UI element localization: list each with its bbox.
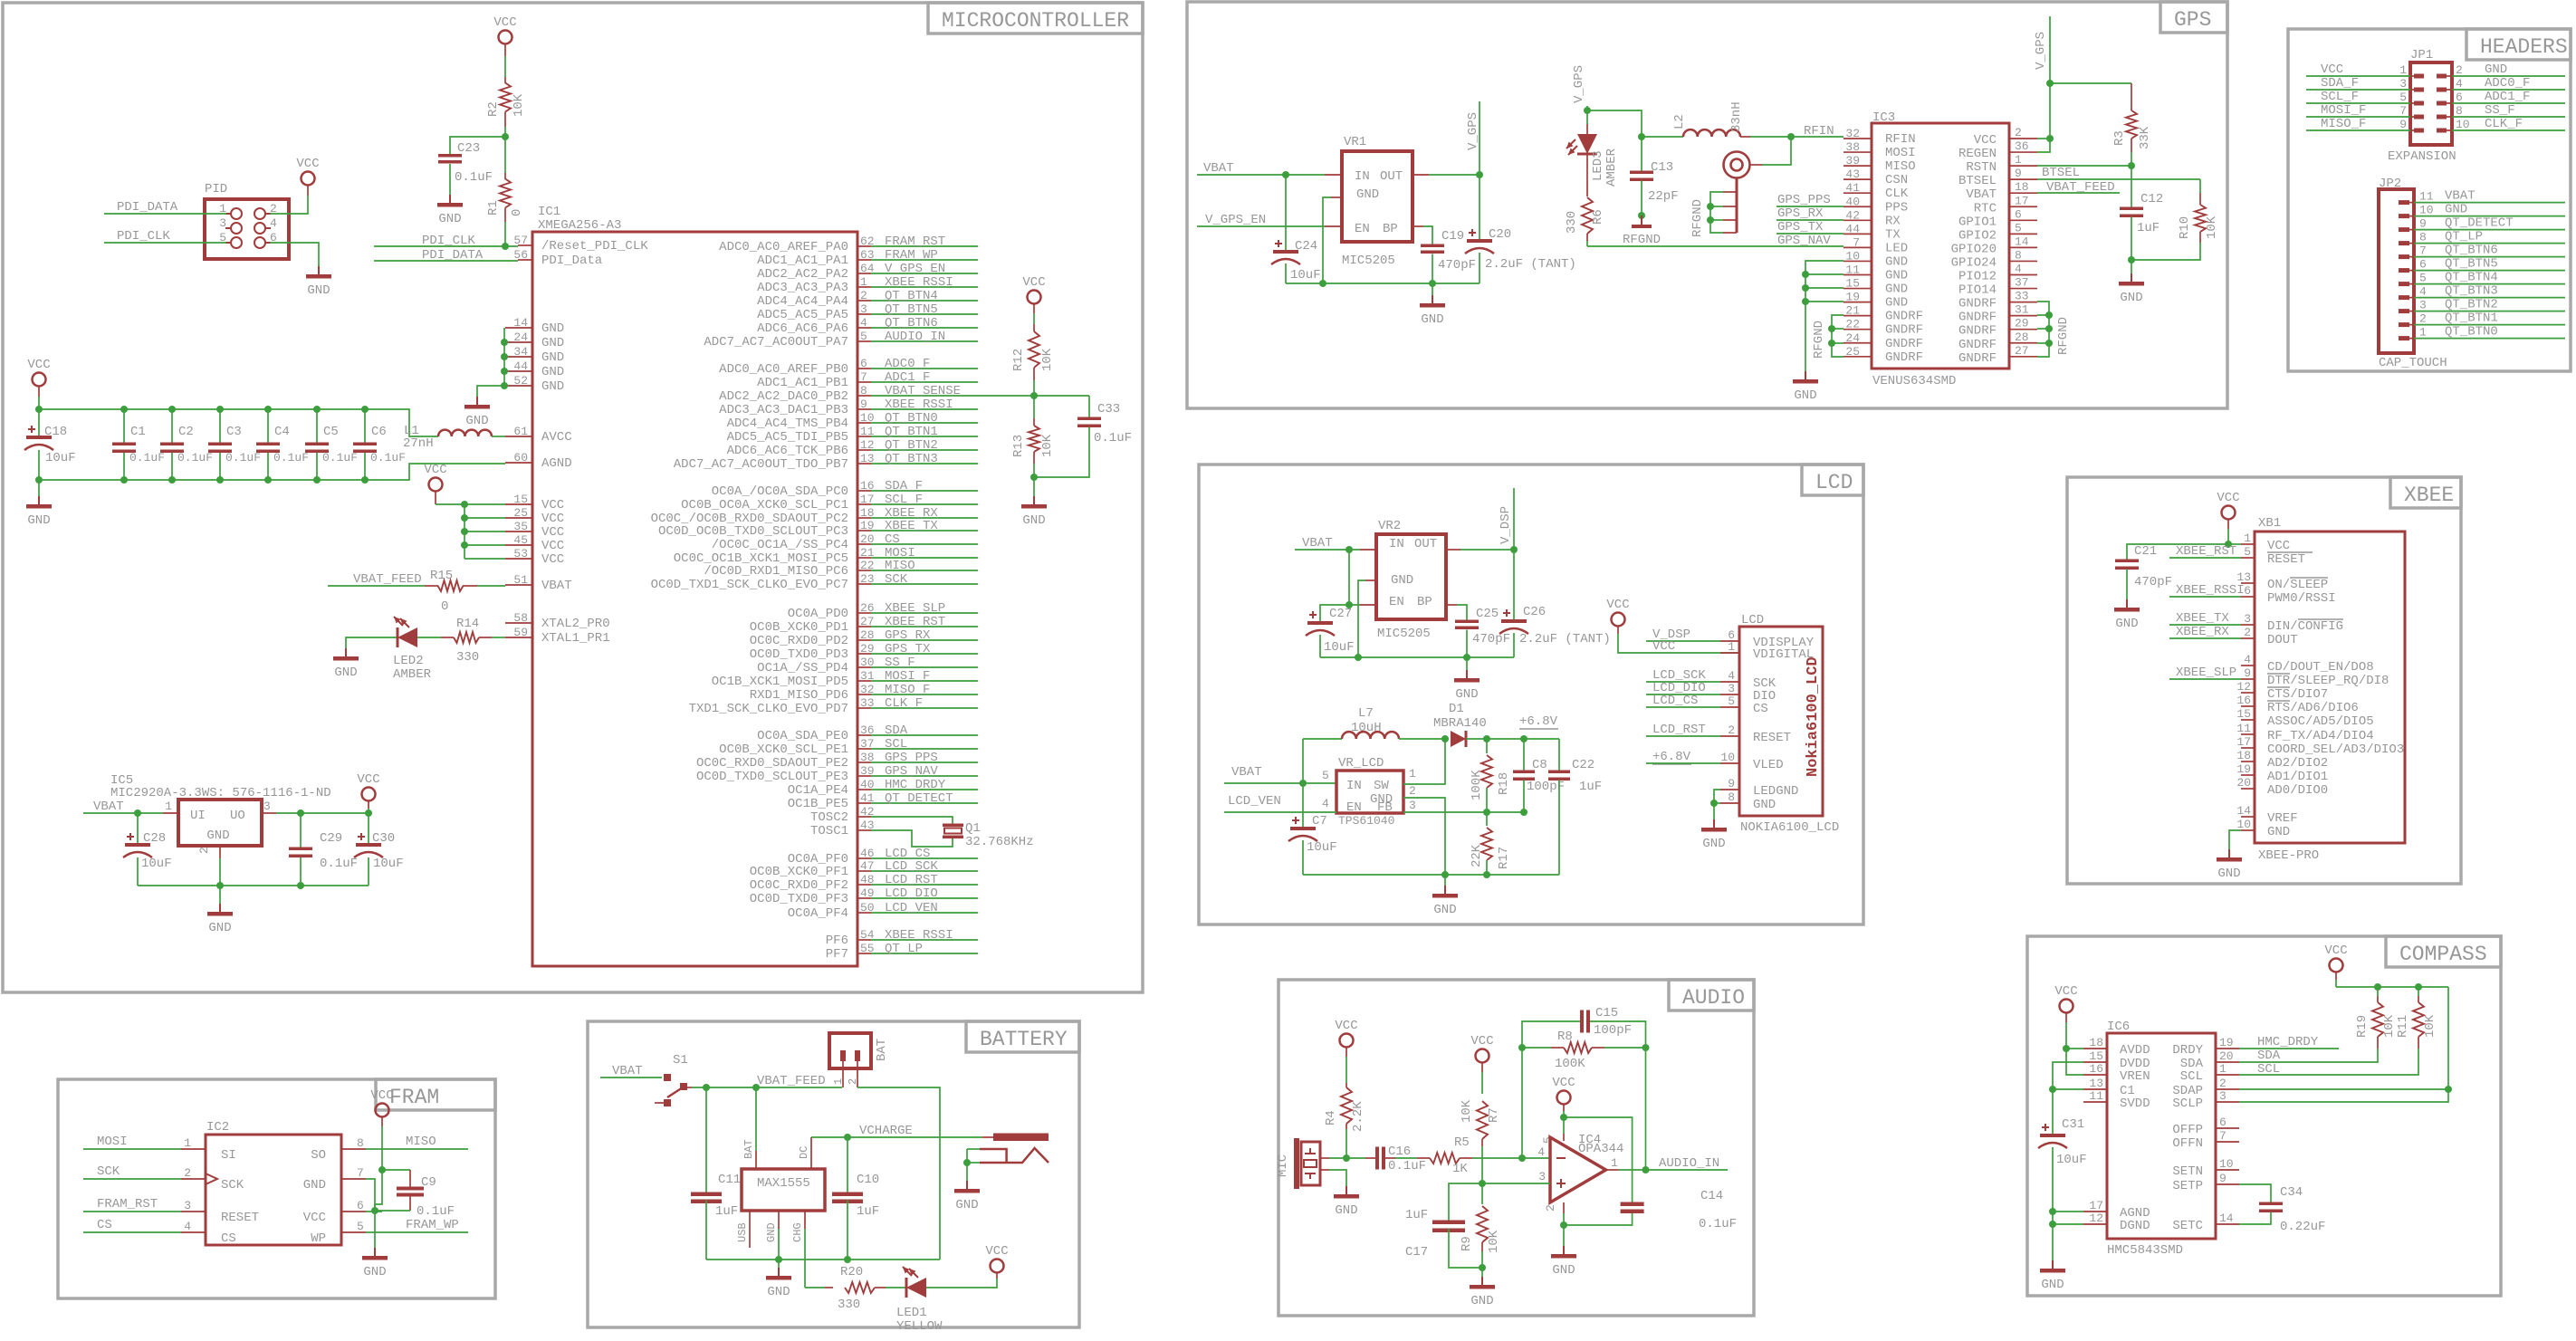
svg-text:6: 6 bbox=[2015, 207, 2022, 221]
svg-text:37: 37 bbox=[2015, 276, 2029, 290]
svg-text:YELLOW: YELLOW bbox=[896, 1319, 943, 1334]
svg-text:PDI_Data: PDI_Data bbox=[541, 254, 602, 268]
svg-text:1: 1 bbox=[1409, 767, 1416, 781]
svg-text:OC0B_XCK0_PF1: OC0B_XCK0_PF1 bbox=[750, 865, 848, 879]
svg-text:XBEE-PRO: XBEE-PRO bbox=[2258, 848, 2319, 863]
svg-text:22pF: 22pF bbox=[1648, 189, 1679, 204]
svg-text:R6: R6 bbox=[1591, 209, 1605, 225]
svg-text:QT_BTN4: QT_BTN4 bbox=[885, 289, 938, 303]
svg-text:OC1B_PE5: OC1B_PE5 bbox=[788, 797, 848, 811]
svg-text:R3: R3 bbox=[2112, 130, 2127, 146]
svg-text:C21: C21 bbox=[2134, 544, 2157, 559]
svg-text:PF7: PF7 bbox=[826, 947, 848, 962]
svg-text:GNDRF: GNDRF bbox=[1885, 350, 1923, 365]
svg-text:OC1A_PE4: OC1A_PE4 bbox=[788, 783, 848, 798]
svg-text:VCC: VCC bbox=[27, 358, 50, 372]
svg-text:2: 2 bbox=[2244, 626, 2251, 639]
svg-text:BATTERY: BATTERY bbox=[980, 1028, 1068, 1051]
svg-text:PIO12: PIO12 bbox=[1958, 270, 1997, 284]
svg-text:VCC: VCC bbox=[1974, 133, 1997, 148]
svg-text:39: 39 bbox=[1845, 154, 1860, 168]
svg-text:470pF: 470pF bbox=[1438, 258, 1476, 273]
svg-text:VCC: VCC bbox=[985, 1244, 1008, 1259]
svg-text:GND: GND bbox=[1433, 903, 1456, 917]
svg-text:4: 4 bbox=[2015, 263, 2022, 276]
svg-text:8: 8 bbox=[357, 1136, 364, 1150]
svg-text:C12: C12 bbox=[2140, 192, 2163, 206]
svg-text:C8: C8 bbox=[1532, 758, 1547, 772]
svg-text:GND: GND bbox=[1421, 312, 1443, 327]
svg-text:22: 22 bbox=[1845, 318, 1860, 331]
svg-text:GPS_TX: GPS_TX bbox=[1777, 220, 1824, 235]
svg-text:ADC7_AC7_AC0OUT_TDO_PB7: ADC7_AC7_AC0OUT_TDO_PB7 bbox=[674, 457, 848, 472]
svg-text:R8: R8 bbox=[1557, 1030, 1573, 1044]
svg-text:C24: C24 bbox=[1295, 239, 1317, 254]
svg-text:VCC: VCC bbox=[357, 772, 379, 787]
svg-text:1: 1 bbox=[860, 275, 867, 289]
svg-text:1: 1 bbox=[1611, 1156, 1618, 1170]
svg-text:330: 330 bbox=[456, 650, 479, 665]
svg-text:XBEE_RSSI: XBEE_RSSI bbox=[885, 928, 953, 943]
svg-text:SW: SW bbox=[1374, 779, 1389, 793]
svg-text:4: 4 bbox=[860, 316, 867, 330]
svg-text:15: 15 bbox=[513, 493, 528, 506]
svg-text:OC0D_TXD0_PF3: OC0D_TXD0_PF3 bbox=[750, 892, 848, 906]
svg-text:VCC: VCC bbox=[541, 539, 564, 553]
svg-text:EN: EN bbox=[1355, 222, 1370, 236]
svg-text:C4: C4 bbox=[274, 425, 290, 439]
svg-text:GNDRF: GNDRF bbox=[1885, 310, 1923, 324]
svg-text:C5: C5 bbox=[323, 425, 339, 439]
svg-text:C15: C15 bbox=[1595, 1006, 1618, 1020]
svg-text:VBAT: VBAT bbox=[93, 800, 124, 814]
svg-text:GPS: GPS bbox=[2174, 8, 2211, 32]
svg-text:OC0A_/OC0A_SDA_PC0: OC0A_/OC0A_SDA_PC0 bbox=[712, 484, 848, 499]
svg-text:14: 14 bbox=[2236, 804, 2251, 818]
svg-text:GPS_NAV: GPS_NAV bbox=[1777, 234, 1831, 248]
svg-text:QT_DETECT: QT_DETECT bbox=[885, 791, 953, 806]
svg-text:GND: GND bbox=[208, 921, 231, 935]
svg-text:COORD_SEL/AD3/DIO3: COORD_SEL/AD3/DIO3 bbox=[2267, 742, 2404, 757]
svg-text:AVDD: AVDD bbox=[2120, 1043, 2150, 1058]
svg-text:QT_BTN0: QT_BTN0 bbox=[885, 411, 938, 426]
svg-text:5: 5 bbox=[860, 330, 867, 343]
svg-text:XBEE_RST: XBEE_RST bbox=[2176, 544, 2236, 559]
svg-text:GND: GND bbox=[955, 1198, 978, 1212]
svg-text:BAT: BAT bbox=[875, 1039, 889, 1061]
svg-text:PF6: PF6 bbox=[826, 934, 848, 948]
svg-text:CS: CS bbox=[97, 1218, 112, 1232]
svg-text:CLK_F: CLK_F bbox=[2485, 117, 2523, 131]
svg-text:R5: R5 bbox=[1454, 1135, 1470, 1150]
svg-text:330: 330 bbox=[838, 1298, 860, 1312]
svg-text:3: 3 bbox=[2399, 77, 2407, 91]
svg-text:XBEE_TX: XBEE_TX bbox=[885, 519, 938, 533]
svg-text:2: 2 bbox=[847, 1078, 859, 1085]
svg-text:1: 1 bbox=[2219, 1062, 2226, 1076]
svg-text:L7: L7 bbox=[1358, 706, 1374, 721]
svg-text:MAX1555: MAX1555 bbox=[757, 1176, 810, 1191]
svg-text:SCK: SCK bbox=[97, 1164, 120, 1179]
svg-text:3: 3 bbox=[860, 302, 867, 316]
svg-text:10uF: 10uF bbox=[141, 857, 172, 871]
svg-text:FRAM_WP: FRAM_WP bbox=[885, 248, 938, 263]
svg-text:2.2uF (TANT): 2.2uF (TANT) bbox=[1485, 257, 1576, 272]
svg-text:VCC: VCC bbox=[303, 1211, 326, 1225]
svg-text:AMBER: AMBER bbox=[1604, 148, 1619, 187]
svg-text:PID: PID bbox=[205, 182, 227, 196]
svg-text:VBAT: VBAT bbox=[1231, 765, 1262, 780]
svg-text:BAT: BAT bbox=[742, 1139, 755, 1159]
svg-text:QT_LP: QT_LP bbox=[2445, 230, 2483, 244]
svg-text:GND: GND bbox=[541, 350, 564, 365]
svg-text:470pF: 470pF bbox=[2134, 575, 2172, 589]
svg-text:SCK: SCK bbox=[221, 1178, 244, 1193]
svg-text:OPA344: OPA344 bbox=[1578, 1142, 1623, 1156]
svg-text:V_GPS_EN: V_GPS_EN bbox=[885, 262, 945, 276]
svg-text:IC2: IC2 bbox=[206, 1120, 229, 1135]
svg-text:2: 2 bbox=[1409, 784, 1416, 798]
svg-text:CD/DOUT_EN/DO8: CD/DOUT_EN/DO8 bbox=[2267, 660, 2374, 675]
svg-text:LCD: LCD bbox=[1815, 471, 1853, 494]
svg-text:QT_BTN3: QT_BTN3 bbox=[885, 452, 938, 466]
svg-text:GPIO24: GPIO24 bbox=[1951, 255, 1997, 270]
svg-text:9: 9 bbox=[2399, 118, 2407, 131]
svg-text:8: 8 bbox=[2456, 104, 2463, 118]
svg-text:10: 10 bbox=[2456, 118, 2470, 131]
svg-text:GPIO2: GPIO2 bbox=[1958, 228, 1997, 243]
svg-text:BP: BP bbox=[1417, 595, 1432, 609]
svg-text:QT_BTN4: QT_BTN4 bbox=[2445, 271, 2498, 285]
svg-text:OC0A_PD0: OC0A_PD0 bbox=[788, 607, 848, 621]
svg-text:XBEE_RSSI: XBEE_RSSI bbox=[2176, 583, 2245, 598]
svg-text:10K: 10K bbox=[2423, 1014, 2437, 1038]
svg-text:QT_BTN5: QT_BTN5 bbox=[885, 302, 938, 317]
svg-text:FB: FB bbox=[1377, 800, 1393, 815]
svg-text:GND: GND bbox=[206, 829, 229, 843]
svg-text:AD2/DIO2: AD2/DIO2 bbox=[2267, 756, 2328, 771]
svg-text:10K: 10K bbox=[1487, 1230, 1501, 1253]
svg-text:SETC: SETC bbox=[2172, 1219, 2203, 1233]
svg-text:QT_BTN5: QT_BTN5 bbox=[2445, 257, 2498, 272]
svg-text:GND: GND bbox=[1885, 283, 1908, 297]
svg-text:MIC5205: MIC5205 bbox=[1377, 627, 1431, 641]
svg-text:10uF: 10uF bbox=[1324, 640, 1355, 655]
svg-text:CS: CS bbox=[1753, 702, 1768, 716]
svg-text:GND: GND bbox=[1794, 388, 1816, 403]
svg-text:V_GPS: V_GPS bbox=[1466, 112, 1480, 150]
svg-text:OC0D_TXD0_PD3: OC0D_TXD0_PD3 bbox=[750, 647, 848, 662]
svg-text:31: 31 bbox=[2015, 303, 2029, 317]
svg-text:R11: R11 bbox=[2396, 1015, 2410, 1038]
svg-text:VCC: VCC bbox=[541, 498, 564, 512]
svg-text:38: 38 bbox=[1845, 140, 1860, 154]
svg-text:C18: C18 bbox=[44, 425, 67, 439]
svg-text:1: 1 bbox=[2244, 532, 2251, 545]
svg-text:XBEE_TX: XBEE_TX bbox=[2176, 611, 2229, 626]
svg-text:MBRA140: MBRA140 bbox=[1433, 716, 1487, 731]
svg-text:VCC: VCC bbox=[541, 512, 564, 526]
svg-text:R4: R4 bbox=[1324, 1110, 1338, 1125]
svg-text:VBAT: VBAT bbox=[1966, 187, 1997, 202]
svg-text:BTSEL: BTSEL bbox=[2042, 166, 2080, 180]
svg-text:RFGND: RFGND bbox=[1690, 199, 1705, 237]
svg-text:14: 14 bbox=[2219, 1212, 2234, 1225]
svg-text:CTS/DIO7: CTS/DIO7 bbox=[2267, 687, 2328, 702]
svg-text:RESET: RESET bbox=[1753, 731, 1791, 745]
svg-text:R15: R15 bbox=[430, 569, 453, 583]
svg-text:3: 3 bbox=[2244, 612, 2251, 626]
svg-text:UO: UO bbox=[230, 809, 245, 823]
svg-text:VLED: VLED bbox=[1753, 758, 1784, 772]
svg-text:VR1: VR1 bbox=[1344, 135, 1366, 149]
svg-text:C7: C7 bbox=[1312, 814, 1327, 829]
svg-text:C34: C34 bbox=[2280, 1185, 2303, 1200]
svg-text:CLK: CLK bbox=[1885, 187, 1909, 201]
svg-text:SCL: SCL bbox=[885, 737, 907, 752]
svg-text:20: 20 bbox=[2219, 1049, 2234, 1063]
svg-text:2: 2 bbox=[1544, 1204, 1557, 1212]
svg-text:GND: GND bbox=[2115, 617, 2138, 631]
svg-text:RFGND: RFGND bbox=[1623, 233, 1661, 247]
svg-text:QT_BTN1: QT_BTN1 bbox=[2445, 311, 2498, 326]
svg-text:C29: C29 bbox=[320, 831, 342, 846]
svg-text:VCC: VCC bbox=[1552, 1076, 1575, 1090]
svg-text:2: 2 bbox=[2419, 312, 2427, 326]
svg-text:GND: GND bbox=[2485, 62, 2507, 77]
svg-text:GPIO1: GPIO1 bbox=[1958, 215, 1997, 229]
svg-text:MIC: MIC bbox=[1276, 1154, 1290, 1177]
svg-text:ADC0_F: ADC0_F bbox=[885, 357, 930, 371]
svg-text:+6.8V: +6.8V bbox=[1519, 714, 1558, 729]
svg-text:1: 1 bbox=[184, 1136, 191, 1150]
svg-text:10K: 10K bbox=[1040, 348, 1055, 371]
svg-text:OUT: OUT bbox=[1380, 169, 1403, 184]
svg-text:12: 12 bbox=[2236, 680, 2251, 694]
svg-text:SCLP: SCLP bbox=[2172, 1097, 2203, 1111]
svg-text:MOSI_F: MOSI_F bbox=[2321, 103, 2366, 118]
svg-text:18: 18 bbox=[2015, 180, 2029, 194]
svg-text:53: 53 bbox=[513, 547, 528, 560]
svg-text:OC0D_TXD0_SCLOUT_PE3: OC0D_TXD0_SCLOUT_PE3 bbox=[696, 770, 848, 784]
svg-text:VBAT_FEED: VBAT_FEED bbox=[353, 572, 422, 587]
svg-text:R2: R2 bbox=[486, 101, 501, 117]
svg-text:MOSI: MOSI bbox=[1885, 146, 1916, 160]
svg-text:ADC5_AC5_TDI_PB5: ADC5_AC5_TDI_PB5 bbox=[727, 430, 848, 445]
svg-text:C13: C13 bbox=[1651, 160, 1673, 175]
svg-text:11: 11 bbox=[1845, 263, 1860, 277]
svg-text:VBAT: VBAT bbox=[612, 1064, 643, 1078]
svg-text:10uF: 10uF bbox=[1307, 840, 1337, 855]
svg-text:S1: S1 bbox=[673, 1053, 688, 1068]
svg-text:ADC1_AC1_PA1: ADC1_AC1_PA1 bbox=[757, 254, 848, 268]
svg-text:QT_BTN2: QT_BTN2 bbox=[2445, 298, 2498, 312]
svg-text:44: 44 bbox=[1845, 222, 1860, 235]
svg-text:10K: 10K bbox=[1460, 1099, 1474, 1123]
svg-text:OC0B_XCK0_SCL_PE1: OC0B_XCK0_SCL_PE1 bbox=[719, 742, 848, 757]
svg-text:GND: GND bbox=[438, 212, 461, 226]
svg-text:GNDRF: GNDRF bbox=[1885, 337, 1923, 351]
svg-text:DIN/CONFIG: DIN/CONFIG bbox=[2267, 619, 2343, 634]
svg-text:LCD_VEN: LCD_VEN bbox=[1228, 794, 1281, 809]
svg-text:C26: C26 bbox=[1523, 605, 1546, 619]
svg-text:V_DSP: V_DSP bbox=[1499, 506, 1513, 544]
svg-text:GND: GND bbox=[2041, 1278, 2064, 1292]
svg-text:AUDIO: AUDIO bbox=[1682, 986, 1745, 1010]
svg-text:330: 330 bbox=[1565, 211, 1579, 234]
svg-text:ON/SLEEP: ON/SLEEP bbox=[2267, 578, 2328, 592]
svg-text:18: 18 bbox=[2089, 1036, 2103, 1049]
svg-text:ADC2_AC2_PA2: ADC2_AC2_PA2 bbox=[757, 267, 848, 282]
svg-text:10K: 10K bbox=[2205, 216, 2219, 239]
svg-text:C17: C17 bbox=[1405, 1245, 1428, 1260]
svg-text:LCD_SCK: LCD_SCK bbox=[885, 859, 938, 874]
svg-text:C11: C11 bbox=[718, 1173, 741, 1187]
svg-text:1: 1 bbox=[2419, 326, 2427, 340]
svg-text:2: 2 bbox=[197, 847, 211, 854]
svg-text:10: 10 bbox=[2236, 818, 2251, 831]
svg-text:1uF: 1uF bbox=[1405, 1208, 1428, 1222]
svg-text:AUDIO_IN: AUDIO_IN bbox=[885, 330, 945, 344]
svg-text:ASSOC/AD5/DIO5: ASSOC/AD5/DIO5 bbox=[2267, 714, 2374, 729]
svg-text:10K: 10K bbox=[1040, 434, 1055, 457]
svg-text:OC1B_XCK1_MOSI_PD5: OC1B_XCK1_MOSI_PD5 bbox=[712, 675, 848, 689]
svg-text:60: 60 bbox=[513, 451, 528, 465]
svg-text:IN: IN bbox=[1355, 169, 1370, 184]
svg-text:VCHARGE: VCHARGE bbox=[859, 1124, 913, 1138]
svg-text:VCC: VCC bbox=[541, 525, 564, 540]
svg-text:61: 61 bbox=[513, 425, 528, 438]
svg-text:C23: C23 bbox=[457, 141, 480, 156]
svg-text:SS_F: SS_F bbox=[885, 656, 915, 670]
svg-text:0.1uF: 0.1uF bbox=[177, 451, 213, 465]
svg-text:RESET: RESET bbox=[221, 1211, 259, 1225]
svg-text:LEDGND: LEDGND bbox=[1753, 784, 1798, 799]
svg-text:2.2uF (TANT): 2.2uF (TANT) bbox=[1519, 632, 1611, 647]
svg-text:VENUS634SMD: VENUS634SMD bbox=[1872, 374, 1956, 388]
svg-text:GND: GND bbox=[1885, 269, 1908, 283]
svg-text:OUT: OUT bbox=[1414, 537, 1437, 551]
svg-text:R7: R7 bbox=[1487, 1107, 1501, 1123]
svg-text:GND: GND bbox=[1753, 798, 1776, 812]
svg-text:8: 8 bbox=[2015, 248, 2022, 262]
svg-text:GNDRF: GNDRF bbox=[1958, 338, 1997, 352]
svg-text:57: 57 bbox=[513, 234, 528, 247]
svg-text:6: 6 bbox=[2419, 258, 2427, 272]
svg-text:BP: BP bbox=[1383, 222, 1398, 236]
svg-text:4: 4 bbox=[2419, 285, 2427, 299]
svg-text:VBAT: VBAT bbox=[541, 579, 572, 593]
svg-text:SCL_F: SCL_F bbox=[885, 493, 923, 507]
svg-text:SDA_F: SDA_F bbox=[2321, 76, 2359, 91]
svg-text:USB: USB bbox=[736, 1222, 749, 1242]
svg-text:ADC6_AC6_PA6: ADC6_AC6_PA6 bbox=[757, 321, 848, 336]
svg-text:R18: R18 bbox=[1497, 772, 1511, 795]
svg-text:IN: IN bbox=[1389, 537, 1404, 551]
svg-text:VCC: VCC bbox=[1022, 275, 1045, 290]
svg-text:2: 2 bbox=[2015, 126, 2022, 139]
svg-text:GND: GND bbox=[27, 513, 50, 528]
svg-text:7: 7 bbox=[2399, 104, 2407, 118]
svg-text:58: 58 bbox=[513, 611, 528, 625]
svg-text:ADC3_AC3_DAC1_PB3: ADC3_AC3_DAC1_PB3 bbox=[719, 403, 848, 417]
svg-text:36: 36 bbox=[2015, 139, 2029, 153]
svg-text:2: 2 bbox=[860, 289, 867, 302]
svg-text:11: 11 bbox=[2089, 1089, 2103, 1103]
svg-text:AGND: AGND bbox=[541, 456, 572, 471]
svg-text:13: 13 bbox=[2089, 1077, 2103, 1090]
svg-text:C3: C3 bbox=[226, 425, 242, 439]
svg-text:OC0C_RXD0_SDAOUT_PE2: OC0C_RXD0_SDAOUT_PE2 bbox=[696, 756, 848, 771]
svg-text:XBEE: XBEE bbox=[2404, 484, 2454, 507]
svg-text:HMC_DRDY: HMC_DRDY bbox=[2257, 1035, 2319, 1049]
svg-text:10uF: 10uF bbox=[45, 451, 76, 465]
svg-text:C28: C28 bbox=[143, 831, 166, 846]
svg-text:R20: R20 bbox=[840, 1265, 863, 1279]
svg-text:22K: 22K bbox=[1470, 844, 1484, 867]
svg-text:34: 34 bbox=[513, 345, 528, 359]
svg-text:XBEE_RX: XBEE_RX bbox=[2176, 625, 2229, 639]
svg-text:2: 2 bbox=[2456, 63, 2463, 77]
svg-text:15: 15 bbox=[2089, 1049, 2103, 1063]
svg-text:41: 41 bbox=[1845, 181, 1860, 195]
svg-text:ADC0_AC0_AREF_PB0: ADC0_AC0_AREF_PB0 bbox=[719, 362, 848, 377]
svg-text:QT_DETECT: QT_DETECT bbox=[2445, 216, 2514, 231]
svg-text:OC1A_/SS_PD4: OC1A_/SS_PD4 bbox=[757, 661, 848, 675]
svg-text:PDI_DATA: PDI_DATA bbox=[422, 248, 484, 263]
svg-text:TXD1_SCK_CLKO_EVO_PD7: TXD1_SCK_CLKO_EVO_PD7 bbox=[689, 702, 848, 716]
svg-text:VCC: VCC bbox=[493, 15, 516, 30]
svg-text:3: 3 bbox=[263, 800, 271, 813]
svg-text:VBAT_FEED: VBAT_FEED bbox=[757, 1074, 826, 1088]
svg-text:7: 7 bbox=[2419, 244, 2427, 258]
svg-text:17: 17 bbox=[2089, 1199, 2103, 1212]
svg-text:GND: GND bbox=[1455, 687, 1478, 702]
svg-text:LCD_VEN: LCD_VEN bbox=[885, 901, 938, 915]
svg-text:15: 15 bbox=[2236, 707, 2251, 721]
svg-text:QT_BTN2: QT_BTN2 bbox=[885, 438, 938, 453]
svg-text:OC0A_SDA_PE0: OC0A_SDA_PE0 bbox=[757, 729, 848, 743]
svg-text:GPS_TX: GPS_TX bbox=[885, 642, 931, 656]
svg-text:5: 5 bbox=[2015, 221, 2022, 235]
svg-text:SETP: SETP bbox=[2172, 1179, 2203, 1193]
svg-text:XB1: XB1 bbox=[2258, 516, 2281, 531]
svg-text:ADC7_AC7_AC0OUT_PA7: ADC7_AC7_AC0OUT_PA7 bbox=[704, 335, 848, 350]
svg-text:6: 6 bbox=[2456, 91, 2463, 104]
svg-text:SCL: SCL bbox=[2180, 1069, 2203, 1084]
svg-text:RTC: RTC bbox=[1974, 201, 1997, 216]
svg-text:GND: GND bbox=[1356, 187, 1379, 202]
svg-text:COMPASS: COMPASS bbox=[2399, 943, 2487, 966]
svg-text:BTSEL: BTSEL bbox=[1958, 174, 1997, 188]
svg-text:NOKIA6100_LCD: NOKIA6100_LCD bbox=[1740, 820, 1839, 835]
svg-text:100K: 100K bbox=[1555, 1057, 1585, 1071]
svg-text:OC0C_RXD0_PF2: OC0C_RXD0_PF2 bbox=[750, 878, 848, 893]
svg-text:OC0B_OC0A_XCK0_SCL_PC1: OC0B_OC0A_XCK0_SCL_PC1 bbox=[681, 498, 848, 512]
svg-text:ADC4_AC4_PA4: ADC4_AC4_PA4 bbox=[757, 294, 848, 309]
svg-text:PDI_DATA: PDI_DATA bbox=[117, 200, 178, 215]
svg-text:VCC: VCC bbox=[541, 552, 564, 567]
svg-text:VCC: VCC bbox=[1606, 598, 1629, 612]
svg-text:12: 12 bbox=[2089, 1212, 2103, 1225]
svg-text:5: 5 bbox=[357, 1220, 364, 1233]
svg-text:QT_LP: QT_LP bbox=[885, 942, 923, 956]
svg-text:MISO_F: MISO_F bbox=[2321, 117, 2366, 131]
svg-text:GNDRF: GNDRF bbox=[1958, 351, 1997, 366]
svg-text:LCD_CS: LCD_CS bbox=[1652, 694, 1698, 708]
svg-text:ADC1_F: ADC1_F bbox=[2485, 90, 2530, 104]
svg-text:11: 11 bbox=[2419, 190, 2434, 204]
